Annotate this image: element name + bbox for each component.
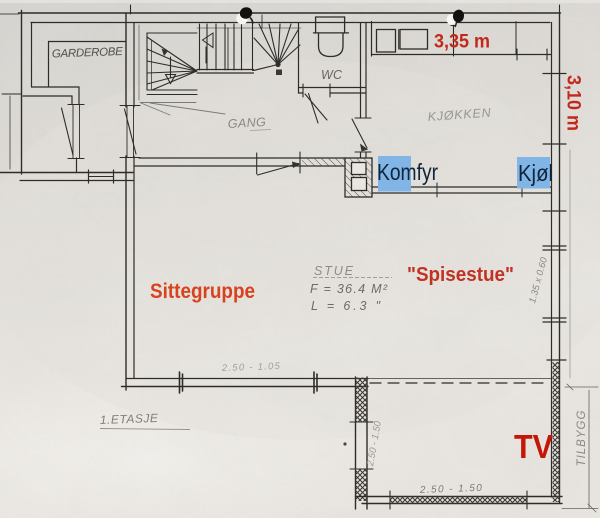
- svg-text:L = 6.3 ": L = 6.3 ": [311, 299, 381, 313]
- svg-text:3,35 m: 3,35 m: [434, 32, 490, 53]
- svg-text:2.50 - 1.50: 2.50 - 1.50: [419, 483, 483, 496]
- svg-text:2.50 - 1.05: 2.50 - 1.05: [221, 361, 281, 374]
- svg-text:1.ETASJE: 1.ETASJE: [100, 411, 159, 427]
- svg-text:F = 36.4 M²: F = 36.4 M²: [310, 282, 388, 296]
- svg-text:STUE: STUE: [314, 264, 354, 278]
- svg-text:"Spisestue": "Spisestue": [407, 263, 514, 286]
- svg-text:Kjøl: Kjøl: [518, 160, 553, 186]
- svg-text:3,10 m: 3,10 m: [563, 75, 584, 131]
- svg-text:GANG: GANG: [227, 115, 266, 131]
- svg-text:GARDEROBE: GARDEROBE: [52, 46, 124, 60]
- svg-text:WC: WC: [321, 68, 343, 82]
- svg-text:TILBYGG: TILBYGG: [576, 410, 588, 467]
- svg-text:TV: TV: [514, 429, 554, 466]
- svg-text:Sittegruppe: Sittegruppe: [150, 279, 255, 303]
- svg-text:Komfyr: Komfyr: [377, 159, 438, 185]
